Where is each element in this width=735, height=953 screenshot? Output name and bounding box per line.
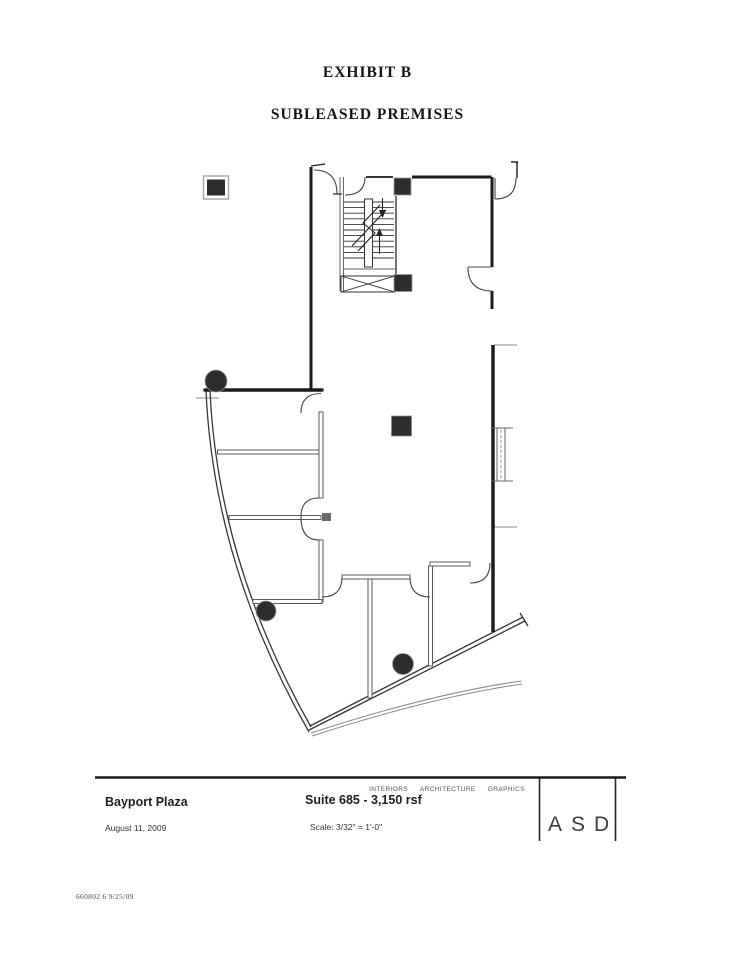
- firm-logo-text: ASD: [548, 813, 618, 837]
- interior-partitions: [218, 412, 471, 698]
- shaft-x-brace: [341, 276, 395, 292]
- suite-area-label: Suite 685 - 3,150 rsf: [305, 793, 422, 807]
- angled-exterior-wall: [309, 613, 528, 730]
- project-name: Bayport Plaza: [105, 795, 188, 809]
- door-jamb-post: [322, 513, 331, 521]
- exhibit-page: EXHIBIT B SUBLEASED PREMISES: [0, 0, 735, 953]
- round-columns: [205, 370, 414, 675]
- floor-plan-drawing: [0, 0, 735, 953]
- drawing-scale-label: Scale: 3/32" = 1'-0": [310, 822, 382, 832]
- stair-direction-arrows: [376, 198, 386, 254]
- firm-services-label: INTERIORS ARCHITECTURE GRAPHICS: [320, 786, 525, 793]
- core-walls: [205, 162, 518, 632]
- issue-date: August 11, 2009: [105, 823, 166, 833]
- light-lines: [196, 345, 522, 736]
- document-stamp: 660802 6 9/25/09: [76, 892, 134, 901]
- stairs: [340, 177, 396, 291]
- door-swings: [301, 170, 516, 597]
- curved-exterior-wall: [206, 391, 311, 732]
